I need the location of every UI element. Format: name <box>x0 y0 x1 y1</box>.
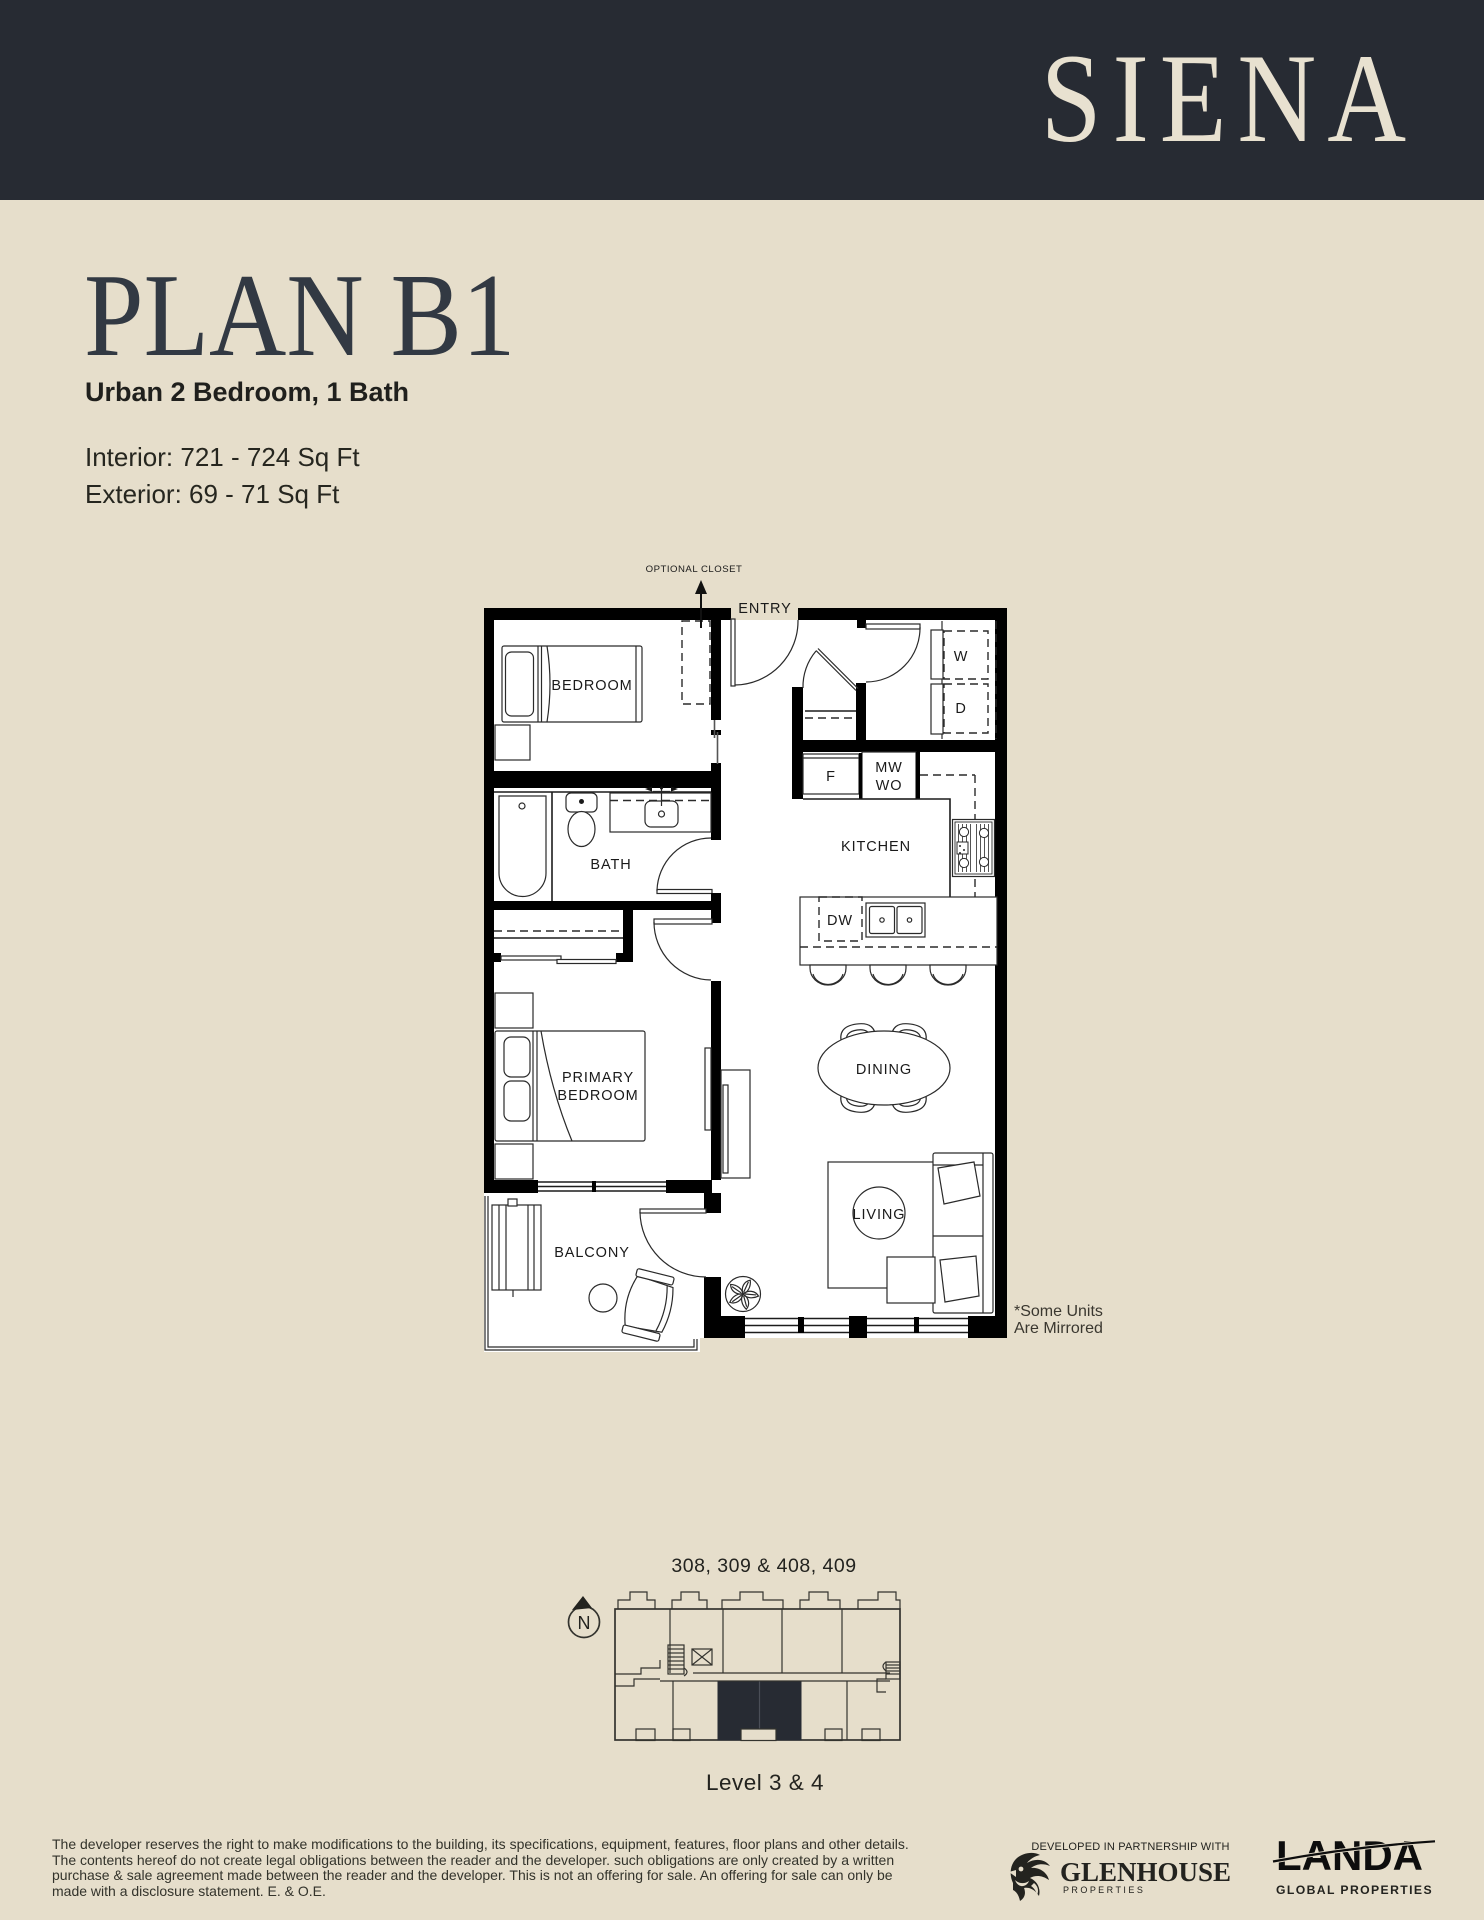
svg-text:P R O P E R T I E S: P R O P E R T I E S <box>1063 1885 1143 1895</box>
svg-text:GLENHOUSE: GLENHOUSE <box>1060 1857 1231 1887</box>
svg-text:308, 309 & 408, 409: 308, 309 & 408, 409 <box>671 1555 856 1577</box>
svg-text:GLOBAL PROPERTIES: GLOBAL PROPERTIES <box>1276 1883 1433 1897</box>
svg-text:Level 3 & 4: Level 3 & 4 <box>706 1770 824 1795</box>
svg-text:N: N <box>578 1613 591 1633</box>
